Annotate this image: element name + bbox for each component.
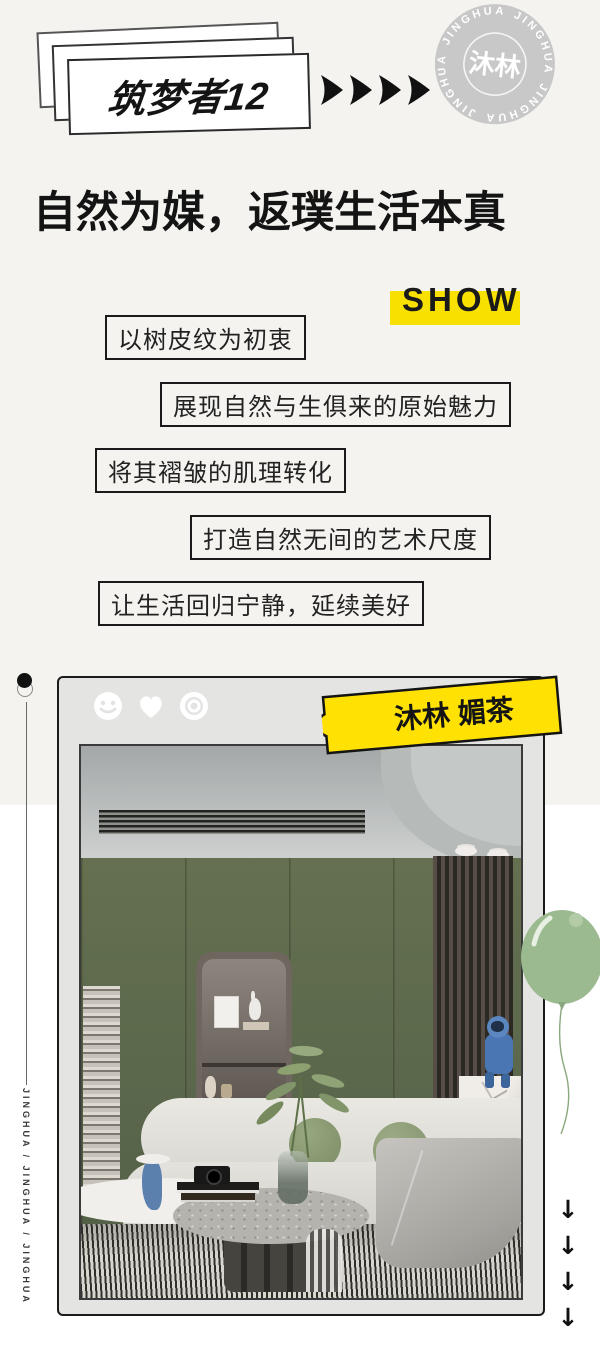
reaction-icons <box>93 691 209 721</box>
astronaut-figurine <box>485 1034 513 1074</box>
brand-stamp: JINGHUA JINGHUA JINGHUA JINGHUA 沐林 <box>410 0 578 158</box>
shelf-board <box>202 1063 286 1067</box>
quote-box: 打造自然无间的艺术尺度 <box>190 515 491 560</box>
pin-dot-icon <box>17 673 32 688</box>
smiley-icon <box>93 691 123 721</box>
quote-box: 将其褶皱的肌理转化 <box>95 448 346 493</box>
right-arrow-icon <box>320 74 344 106</box>
astronaut-visor <box>491 1021 504 1032</box>
right-arrow-icon <box>378 74 402 106</box>
book-stack <box>181 1193 255 1202</box>
ceiling-lamp <box>455 846 477 856</box>
show-label: SHOW <box>402 281 521 319</box>
show-badge: SHOW <box>390 291 520 325</box>
target-icon <box>179 691 209 721</box>
shelf-cup <box>221 1084 232 1098</box>
right-arrow-icon <box>349 74 373 106</box>
throw-blanket <box>376 1138 523 1268</box>
shelf-picture <box>214 996 239 1028</box>
glass-vase <box>278 1151 308 1204</box>
poster-page: 筑梦者12 JINGHUA JINGHUA JINGHUA JINGHUA 沐林… <box>0 0 600 1351</box>
figurine-hat <box>136 1154 170 1164</box>
rabbit-figurine <box>249 998 261 1020</box>
quote-box: 让生活回归宁静，延续美好 <box>98 581 424 626</box>
quote-box: 以树皮纹为初衷 <box>105 315 306 360</box>
shelf-books <box>243 1022 269 1030</box>
stamp-center-text: 沐林 <box>467 48 522 83</box>
title-card: 筑梦者12 <box>67 53 311 135</box>
quote-box: 展现自然与生俱来的原始魅力 <box>160 382 511 427</box>
down-arrows: ↓ ↓ ↓ ↓ <box>550 1196 586 1331</box>
balloon-string <box>560 1004 569 1134</box>
down-arrow-icon: ↓ <box>558 1196 579 1223</box>
ac-vent <box>99 810 365 834</box>
heart-icon <box>136 691 166 721</box>
balloon-icon <box>518 902 600 1142</box>
down-arrow-icon: ↓ <box>558 1304 579 1331</box>
magazine-rack <box>306 1229 342 1292</box>
book-tower <box>83 986 120 1188</box>
side-vertical-text: JINGHUA / JINGHUA / JINGHUA <box>21 1088 31 1305</box>
astronaut-leg <box>501 1074 510 1088</box>
photo-frame-card <box>57 676 545 1316</box>
interior-photo <box>79 744 523 1300</box>
shelf-vase <box>205 1076 216 1098</box>
down-arrow-icon: ↓ <box>558 1232 579 1259</box>
headline: 自然为媒，返璞生活本真 <box>33 178 573 240</box>
camera <box>194 1166 230 1184</box>
side-rail-line <box>26 702 27 1085</box>
astronaut-leg <box>485 1072 494 1088</box>
blue-figurine <box>142 1160 162 1210</box>
down-arrow-icon: ↓ <box>558 1268 579 1295</box>
title-card-label: 筑梦者12 <box>105 64 273 123</box>
